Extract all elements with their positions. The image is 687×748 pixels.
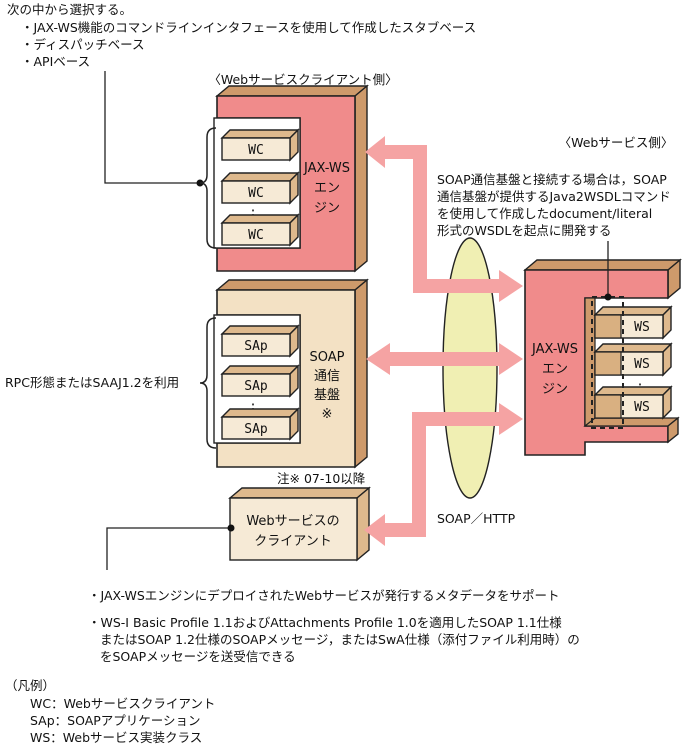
sap-box: SAp — [222, 366, 298, 396]
wc-box: WC — [222, 215, 298, 245]
box-right-face — [355, 280, 367, 467]
box-top-face — [222, 215, 298, 223]
box-left-segment — [595, 352, 621, 375]
service-annotation: SOAP通信基盤と接続する場合は，SOAP — [437, 172, 667, 187]
box-top-face — [525, 260, 680, 270]
box-top-face — [222, 326, 298, 334]
connector-options-to-wc — [105, 71, 200, 183]
ws-box: WS — [595, 387, 671, 418]
box-left-segment — [595, 315, 621, 338]
diagram-page: 次の中から選択する。 ・JAX-WS機能のコマンドラインインタフェースを使用して… — [0, 0, 687, 748]
box-label: SAp — [244, 422, 268, 437]
box-label: WS — [634, 320, 650, 335]
legend-item: WS：Webサービス実装クラス — [30, 730, 202, 745]
rpc-note: RPC形態またはSAAJ1.2を利用 — [5, 375, 179, 390]
sap-box: SAp — [222, 326, 298, 356]
engine-label: ジン — [314, 201, 340, 216]
soap-label: SOAP — [310, 350, 345, 365]
intro-bullet: ・APIベース — [21, 54, 90, 69]
box-top-face — [222, 366, 298, 374]
box-top-face — [230, 488, 369, 498]
ws-box: WS — [595, 307, 671, 338]
engine-label: JAX-WS — [531, 342, 578, 357]
box-right-face — [355, 86, 367, 271]
ws-box: WS — [595, 344, 671, 375]
footer-note: またはSOAP 1.2仕様のSOAPメッセージ，またはSwA仕様（添付ファイル利… — [100, 632, 580, 647]
box-label: WC — [248, 186, 264, 201]
box-top-face — [222, 409, 298, 417]
service-annotation: 形式のWSDLを起点に開発する — [437, 223, 611, 238]
footer-note: をSOAPメッセージを送受信できる — [100, 649, 296, 664]
connector-client-box-to-notes — [107, 528, 231, 570]
footer-note: ・JAX-WSエンジンにデプロイされたWebサービスが発行するメタデータをサポー… — [88, 588, 560, 603]
service-side-heading: 〈Webサービス側〉 — [559, 135, 674, 150]
intro-bullet: ・JAX-WS機能のコマンドラインインタフェースを使用して作成したスタブベース — [21, 20, 476, 35]
box-top-face — [222, 130, 298, 138]
box-label: クライアント — [254, 534, 331, 549]
cavity-inner-wall — [585, 298, 595, 426]
box-face — [230, 498, 357, 560]
cavity-floor — [585, 418, 678, 426]
engine-label: ジン — [542, 382, 568, 397]
soap-label: 基盤 — [314, 388, 340, 403]
engine-label: エン — [542, 362, 568, 377]
engine-label: エン — [314, 181, 340, 196]
box-top-face — [595, 344, 671, 352]
sap-box: SAp — [222, 409, 298, 439]
box-top-face — [595, 307, 671, 315]
box-top-face — [222, 173, 298, 181]
box-top-face — [595, 387, 671, 395]
intro-bullet: ・ディスパッチベース — [21, 37, 145, 52]
soap-label: 通信 — [314, 369, 340, 384]
box-label: WS — [634, 357, 650, 372]
service-annotation: 通信基盤が提供するJava2WSDLコマンド — [437, 189, 671, 204]
service-annotation: を使用して作成したdocument/literal — [437, 206, 652, 221]
protocol-label: SOAP／HTTP — [437, 511, 516, 526]
box-label: WC — [248, 143, 264, 158]
intro-heading: 次の中から選択する。 — [7, 2, 132, 17]
footer-note: ・WS-I Basic Profile 1.1およびAttachments Pr… — [88, 615, 562, 630]
box-label: WS — [634, 400, 650, 415]
version-note: 注※ 07-10以降 — [277, 471, 366, 486]
wc-box: WC — [222, 173, 298, 203]
wc-box: WC — [222, 130, 298, 160]
box-top-face — [217, 86, 367, 96]
engine-label: JAX-WS — [303, 161, 350, 176]
client-side-heading: 〈Webサービスクライアント側〉 — [208, 72, 397, 87]
box-label: WC — [248, 228, 264, 243]
junction-dot — [605, 294, 612, 301]
box-label: SAp — [244, 379, 268, 394]
box-left-segment — [595, 395, 621, 418]
network-ellipse — [443, 238, 497, 498]
box-top-face — [217, 280, 367, 290]
box-label: Webサービスの — [246, 514, 339, 529]
legend-heading: （凡例） — [5, 678, 55, 693]
legend-item: WC：Webサービスクライアント — [30, 696, 215, 711]
junction-dot — [228, 525, 235, 532]
legend-item: SAp：SOAPアプリケーション — [30, 713, 201, 728]
ws-client-box: Webサービスの クライアント — [230, 488, 369, 560]
soap-label: ※ — [322, 407, 333, 422]
architecture-diagram: 次の中から選択する。 ・JAX-WS機能のコマンドラインインタフェースを使用して… — [0, 0, 687, 748]
box-right-face — [357, 488, 369, 560]
box-label: SAp — [244, 339, 268, 354]
